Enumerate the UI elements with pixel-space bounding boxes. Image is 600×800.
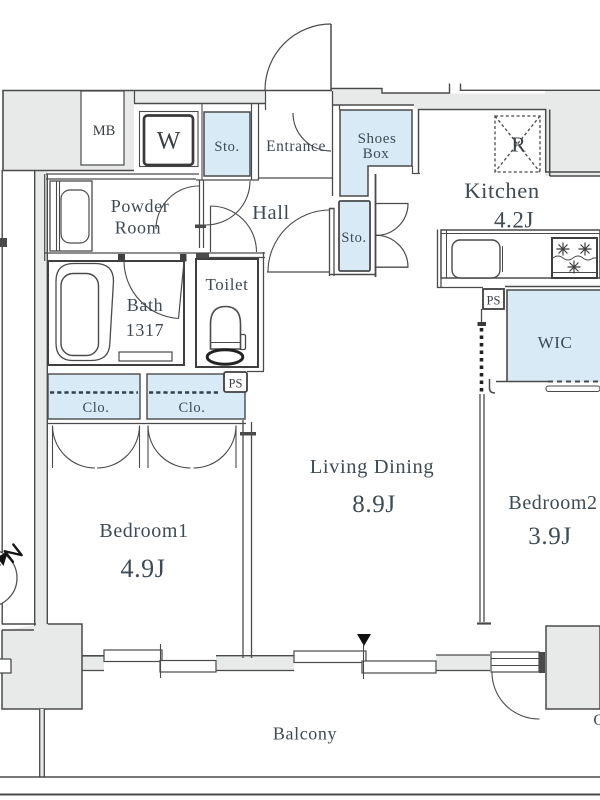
svg-text:Clo.: Clo. xyxy=(83,400,110,416)
svg-text:Kitchen: Kitchen xyxy=(464,178,539,203)
svg-text:Hall: Hall xyxy=(252,202,290,224)
svg-text:MB: MB xyxy=(93,123,116,139)
svg-text:W: W xyxy=(157,128,181,155)
svg-text:Powder: Powder xyxy=(111,196,170,216)
svg-text:WIC: WIC xyxy=(538,333,573,352)
svg-text:Balcony: Balcony xyxy=(273,724,337,744)
svg-text:Shoes: Shoes xyxy=(358,131,397,147)
svg-text:PS: PS xyxy=(229,377,243,391)
svg-text:Room: Room xyxy=(115,218,161,238)
svg-text:Clo.: Clo. xyxy=(179,400,206,416)
svg-text:8.9J: 8.9J xyxy=(352,491,395,518)
svg-text:4.9J: 4.9J xyxy=(120,554,165,583)
svg-text:Sto.: Sto. xyxy=(214,139,239,155)
svg-text:Box: Box xyxy=(363,146,390,162)
svg-text:Bedroom1: Bedroom1 xyxy=(99,520,188,542)
svg-text:4.2J: 4.2J xyxy=(494,208,534,233)
svg-text:3.9J: 3.9J xyxy=(528,523,571,550)
svg-text:Bath: Bath xyxy=(127,295,163,315)
svg-text:Living Dining: Living Dining xyxy=(310,456,435,478)
svg-text:R: R xyxy=(511,133,526,157)
svg-text:1317: 1317 xyxy=(126,320,164,340)
svg-text:Entrance: Entrance xyxy=(266,138,326,155)
svg-text:Sto.: Sto. xyxy=(341,230,366,246)
svg-text:Bedroom2: Bedroom2 xyxy=(508,492,597,514)
svg-text:Toilet: Toilet xyxy=(205,275,248,294)
svg-text:PS: PS xyxy=(487,294,501,308)
svg-text:C: C xyxy=(593,712,600,729)
